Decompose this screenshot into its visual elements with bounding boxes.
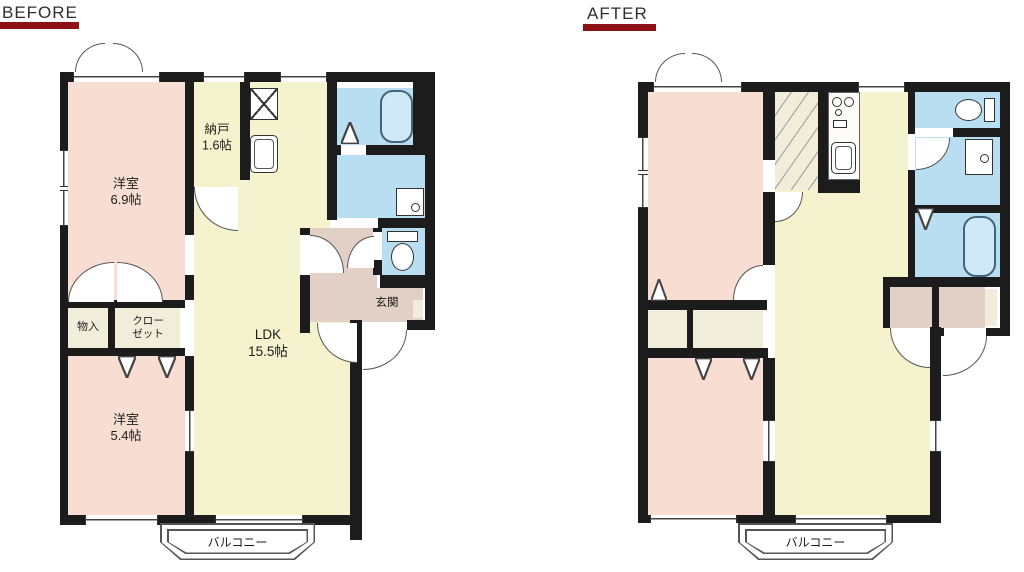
wall <box>160 72 203 82</box>
wall <box>185 275 194 300</box>
bathtub-icon <box>380 90 413 143</box>
wall <box>1000 82 1010 335</box>
before-floorplan: 洋室6.9帖 納戸1.6帖 LDK15.5帖 物入 クローゼット 玄関 洋室5.… <box>60 40 435 562</box>
wall <box>185 82 194 235</box>
folding-door-mark <box>341 122 359 144</box>
wall <box>763 358 775 420</box>
room-label-bedroom2: 洋室5.4帖 <box>110 412 141 445</box>
wall <box>60 515 85 525</box>
toilet-icon <box>953 96 995 124</box>
sliding-door <box>185 410 194 452</box>
sliding-door <box>763 420 775 462</box>
wall <box>648 348 768 358</box>
wall <box>240 82 250 180</box>
shoe-cabinet <box>413 300 423 318</box>
door-opening <box>373 232 382 260</box>
wall <box>648 300 767 310</box>
wall <box>407 320 435 330</box>
wall <box>687 310 693 348</box>
wall <box>883 277 1010 287</box>
room-label-ldk: LDK15.5帖 <box>248 327 288 361</box>
window <box>930 420 941 452</box>
folding-door-mark <box>743 358 760 380</box>
door-arc <box>692 53 722 82</box>
window <box>638 174 648 208</box>
room-label-balcony: バルコニー <box>208 536 268 551</box>
pipe-space-icon <box>250 88 278 120</box>
before-heading-underline <box>0 22 79 29</box>
room-label-monoire: 物入 <box>77 321 99 335</box>
folding-door-mark <box>917 208 934 230</box>
wall <box>887 515 941 523</box>
wall <box>327 82 337 220</box>
door-arc <box>655 53 685 82</box>
window <box>60 190 68 226</box>
toilet-icon <box>387 231 418 273</box>
wall <box>425 72 435 330</box>
wall <box>908 92 915 134</box>
wall <box>185 452 194 515</box>
window <box>73 72 160 82</box>
window <box>280 72 327 82</box>
wall <box>930 452 941 515</box>
window <box>653 82 742 92</box>
wall <box>300 228 310 235</box>
room-bedroom1 <box>648 92 763 300</box>
after-heading-underline <box>583 24 656 31</box>
room-label-bedroom1: 洋室6.9帖 <box>110 176 141 209</box>
wall <box>185 356 194 410</box>
room-label-closet: クローゼット <box>132 315 164 341</box>
wall <box>953 128 1000 137</box>
wall <box>986 328 1010 336</box>
door-opening <box>300 235 310 275</box>
window <box>85 515 158 525</box>
wall <box>337 145 341 155</box>
room-label-nando: 納戸1.6帖 <box>202 122 232 153</box>
folding-door-mark <box>158 356 176 378</box>
wall <box>378 218 425 228</box>
washbasin-icon <box>396 188 424 216</box>
wall <box>930 327 941 420</box>
closet <box>890 287 932 328</box>
room-label-balcony: バルコニー <box>786 536 846 551</box>
room-genkan <box>939 287 985 328</box>
wall <box>742 82 858 92</box>
wall <box>638 208 648 515</box>
wall <box>108 308 115 348</box>
wall <box>638 92 648 137</box>
wall <box>908 170 915 287</box>
washbasin-icon <box>965 139 993 175</box>
wall <box>68 348 185 356</box>
window <box>638 137 648 171</box>
window <box>858 82 905 92</box>
entrance-door-arc <box>943 336 987 376</box>
wall <box>380 275 425 288</box>
kitchen-sink-icon <box>831 142 856 174</box>
balcony: バルコニー <box>738 523 893 560</box>
wall <box>60 226 68 515</box>
wall <box>60 72 73 82</box>
after-floorplan: バルコニー <box>638 50 1013 562</box>
balcony: バルコニー <box>160 523 315 560</box>
wall <box>60 82 68 150</box>
wall <box>932 287 939 328</box>
wall <box>818 92 828 190</box>
wall <box>818 178 860 193</box>
stove-icon <box>835 109 842 116</box>
wall <box>327 72 435 82</box>
room-bedroom2 <box>648 358 763 515</box>
grill-icon <box>833 120 847 128</box>
wall <box>245 72 280 82</box>
walkin-closet <box>775 92 818 190</box>
window <box>203 72 245 82</box>
wall <box>638 515 650 523</box>
wall <box>932 328 944 336</box>
window <box>60 150 68 187</box>
wall <box>763 462 775 515</box>
bathtub-icon <box>963 216 996 277</box>
stove-icon <box>844 97 854 107</box>
wall <box>883 287 890 328</box>
wall <box>300 275 310 333</box>
entrance-door-arc <box>363 330 407 370</box>
stove-icon <box>832 97 842 107</box>
after-heading: AFTER <box>587 4 648 24</box>
kitchen-sink-icon <box>250 135 278 173</box>
wall <box>763 92 775 160</box>
shoe-cabinet <box>985 289 997 326</box>
folding-door-mark <box>695 358 712 380</box>
wall <box>905 82 1010 92</box>
floorplan-comparison: BEFORE AFTER <box>0 0 1024 572</box>
folding-door-mark <box>118 356 136 378</box>
before-heading: BEFORE <box>2 3 78 23</box>
closet <box>693 310 763 348</box>
folding-door-mark <box>651 279 667 301</box>
closet <box>648 310 687 348</box>
room-label-genkan: 玄関 <box>376 296 399 310</box>
wall <box>763 192 775 265</box>
door-arc <box>113 43 143 72</box>
room-ldk <box>300 185 330 228</box>
door-arc <box>75 43 105 72</box>
wall <box>373 260 382 275</box>
window <box>650 515 737 523</box>
wall <box>413 82 425 148</box>
wall <box>737 515 795 523</box>
window <box>795 515 887 523</box>
